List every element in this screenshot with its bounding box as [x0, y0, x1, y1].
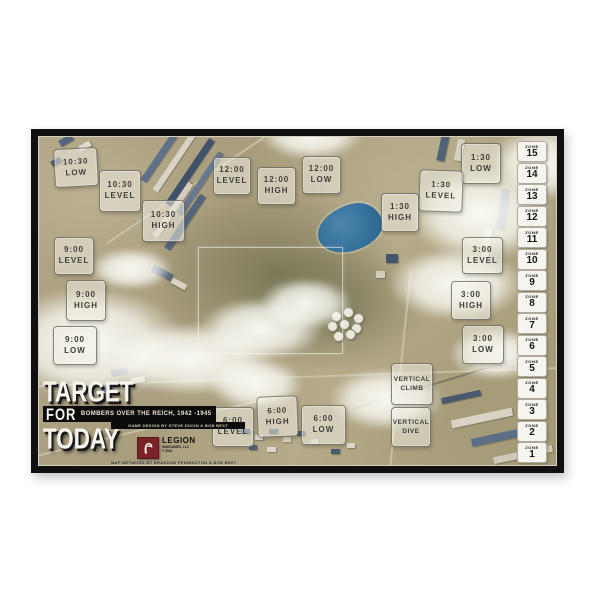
position-box-label: LOW: [311, 176, 333, 185]
zone-number: 4: [529, 385, 535, 395]
position-box-vertical-climb[interactable]: VERTICALCLIMB: [391, 363, 433, 405]
zone-number: 3: [529, 407, 535, 417]
position-box-label: 1:30: [471, 154, 491, 163]
position-box-label: DIVE: [402, 428, 419, 435]
position-box-label: LEVEL: [105, 192, 136, 201]
position-box-label: HIGH: [152, 222, 176, 231]
game-board: 10:30LOW10:30LEVEL10:30HIGH12:00LEVEL12:…: [31, 129, 564, 473]
position-box-label: HIGH: [459, 302, 483, 311]
zone-number: 7: [529, 321, 535, 331]
zone-box-2[interactable]: ZONE2: [517, 421, 547, 442]
zone-box-3[interactable]: ZONE3: [517, 399, 547, 420]
position-box-1-30-low[interactable]: 1:30LOW: [461, 143, 501, 184]
position-box-label: 3:00: [473, 335, 493, 344]
zone-number: 14: [526, 170, 537, 180]
position-box-1-30-level[interactable]: 1:30LEVEL: [418, 169, 463, 213]
position-box-6-00-low[interactable]: 6:00LOW: [301, 405, 346, 445]
position-box-12-00-low[interactable]: 12:00LOW: [302, 156, 341, 194]
position-box-label: 1:30: [390, 203, 410, 212]
game-subtitle: BOMBERS OVER THE REICH, 1942 -1945: [76, 411, 216, 417]
position-box-label: LOW: [313, 426, 335, 435]
position-box-label: HIGH: [388, 214, 412, 223]
zone-number: 10: [526, 256, 537, 266]
game-title-line3: TODAY: [43, 425, 119, 454]
position-box-12-00-level[interactable]: 12:00LEVEL: [213, 157, 251, 195]
zone-number: 1: [529, 450, 535, 460]
position-box-label: 12:00: [264, 176, 289, 185]
position-box-label: 9:00: [76, 291, 96, 300]
building: [347, 443, 355, 448]
zone-box-10[interactable]: ZONE10: [517, 249, 547, 270]
position-box-label: LEVEL: [467, 257, 498, 266]
position-box-9-00-level[interactable]: 9:00LEVEL: [54, 237, 94, 275]
position-box-1-30-high[interactable]: 1:30HIGH: [381, 193, 419, 232]
publisher-year: © 2016: [162, 450, 196, 453]
zone-number: 15: [526, 149, 537, 159]
zone-number: 9: [529, 278, 535, 288]
zone-number: 6: [529, 342, 535, 352]
zone-box-6[interactable]: ZONE6: [517, 335, 547, 356]
position-box-label: LEVEL: [217, 177, 248, 186]
position-box-label: 1:30: [431, 181, 451, 190]
position-box-label: LEVEL: [425, 191, 456, 201]
position-box-label: 9:00: [64, 246, 84, 255]
zone-box-15[interactable]: ZONE15: [517, 141, 547, 162]
position-box-label: 3:00: [461, 291, 481, 300]
zone-box-8[interactable]: ZONE8: [517, 292, 547, 313]
position-box-label: 10:30: [151, 211, 176, 220]
position-box-3-00-level[interactable]: 3:00LEVEL: [462, 237, 503, 274]
position-box-label: 12:00: [219, 166, 244, 175]
zone-box-13[interactable]: ZONE13: [517, 184, 547, 205]
art-credit: MAP ARTWORK BY BRANDON PENNINGTON & BOB …: [111, 460, 237, 465]
position-box-vertical-dive[interactable]: VERTICALDIVE: [391, 407, 431, 447]
zone-box-7[interactable]: ZONE7: [517, 313, 547, 334]
design-credit: GAME DESIGN BY STEVE DIXON & BOB BEST: [111, 422, 245, 429]
zone-number: 13: [526, 192, 537, 202]
position-box-label: 10:30: [63, 157, 89, 167]
target-area-outline: [198, 247, 343, 354]
building: [376, 271, 385, 278]
publisher-logo: LEGION WARGAMES, LLC © 2016: [137, 437, 196, 459]
game-title-line2: FOR: [46, 405, 76, 424]
position-box-label: HIGH: [265, 187, 289, 196]
spartan-helmet-icon: [137, 437, 159, 459]
position-box-label: LOW: [470, 165, 492, 174]
position-box-label: LEVEL: [218, 428, 249, 437]
storage-tank: [345, 329, 356, 340]
zone-box-11[interactable]: ZONE11: [517, 227, 547, 248]
building: [331, 449, 340, 454]
position-box-label: 6:00: [267, 406, 287, 415]
zone-number: 8: [529, 299, 535, 309]
position-box-label: CLIMB: [400, 385, 423, 392]
zone-box-12[interactable]: ZONE12: [517, 206, 547, 227]
position-box-label: 9:00: [65, 336, 85, 345]
position-box-label: 3:00: [472, 246, 492, 255]
zone-number: 12: [526, 213, 537, 223]
building: [283, 437, 291, 442]
zone-number: 11: [527, 235, 538, 245]
position-box-label: 6:00: [313, 415, 333, 424]
zone-box-5[interactable]: ZONE5: [517, 356, 547, 377]
zone-box-1[interactable]: ZONE1: [517, 442, 547, 463]
position-box-10-30-high[interactable]: 10:30HIGH: [142, 200, 185, 242]
position-box-label: HIGH: [266, 417, 290, 427]
zone-number: 2: [529, 428, 535, 438]
cloud: [261, 129, 361, 159]
position-box-label: LOW: [64, 347, 86, 356]
position-box-label: LOW: [65, 168, 87, 178]
subtitle-band: FOR BOMBERS OVER THE REICH, 1942 -1945: [43, 406, 216, 422]
publisher-name: LEGION: [162, 437, 196, 445]
position-box-label: LOW: [472, 346, 494, 355]
position-box-3-00-low[interactable]: 3:00LOW: [462, 325, 504, 364]
position-box-label: VERTICAL: [394, 376, 431, 383]
zone-box-14[interactable]: ZONE14: [517, 163, 547, 184]
position-box-9-00-high[interactable]: 9:00HIGH: [66, 280, 106, 321]
position-box-10-30-low[interactable]: 10:30LOW: [53, 147, 99, 188]
position-box-label: LEVEL: [59, 257, 90, 266]
zone-number: 5: [529, 364, 535, 374]
position-box-3-00-high[interactable]: 3:00HIGH: [451, 281, 491, 320]
zone-box-9[interactable]: ZONE9: [517, 270, 547, 291]
position-box-label: 10:30: [107, 181, 132, 190]
position-box-6-00-high[interactable]: 6:00HIGH: [256, 395, 298, 437]
zone-box-4[interactable]: ZONE4: [517, 378, 547, 399]
position-box-12-00-high[interactable]: 12:00HIGH: [257, 167, 296, 205]
position-box-label: 12:00: [309, 165, 334, 174]
product-photo: 10:30LOW10:30LEVEL10:30HIGH12:00LEVEL12:…: [0, 0, 600, 600]
position-box-label: VERTICAL: [393, 419, 430, 426]
position-box-label: HIGH: [74, 302, 98, 311]
game-title-line1: TARGET: [43, 378, 134, 407]
position-box-9-00-low[interactable]: 9:00LOW: [53, 326, 97, 365]
building: [267, 447, 276, 452]
position-box-10-30-level[interactable]: 10:30LEVEL: [99, 170, 141, 212]
